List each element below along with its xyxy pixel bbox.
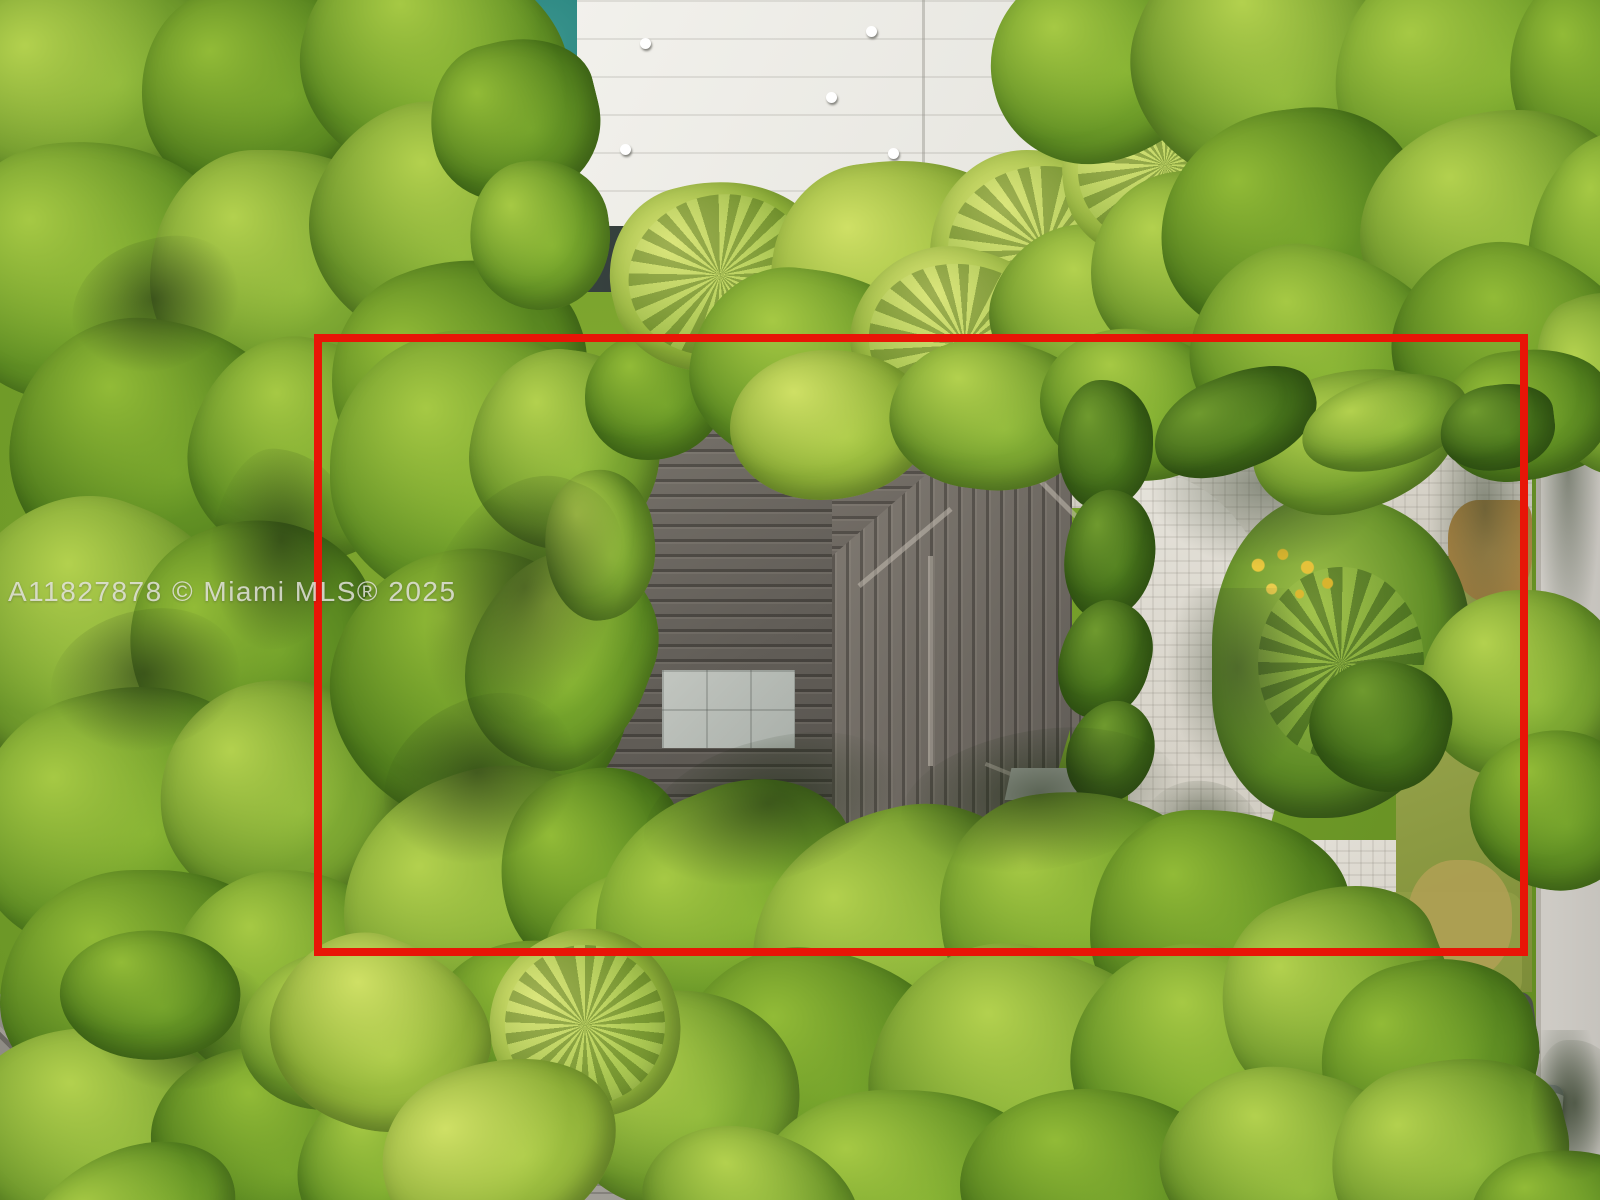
tree-shadow <box>1530 1040 1600 1180</box>
mls-watermark: A11827878 © Miami MLS® 2025 <box>8 576 457 608</box>
property-boundary <box>314 334 1528 956</box>
aerial-property-photo: A11827878 © Miami MLS® 2025 <box>0 0 1600 1200</box>
